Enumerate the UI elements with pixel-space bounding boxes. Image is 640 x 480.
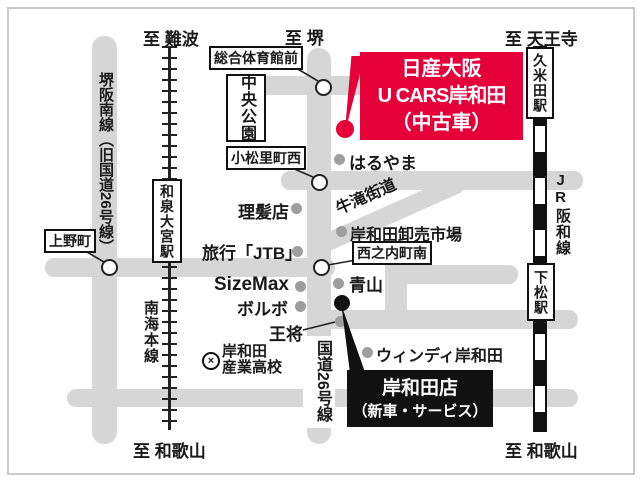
- aoyama-dot: [333, 278, 344, 289]
- station-izumiomiya: 和泉大宮駅: [152, 179, 182, 263]
- ucars-line2: U CARS岸和田: [378, 83, 506, 110]
- barber-dot: [291, 203, 302, 214]
- intersection-label-uenocho: 上野町: [44, 229, 96, 253]
- station-shimomatsu: 下松駅: [527, 263, 555, 321]
- windy-kishiwada-dot: [362, 347, 373, 358]
- kishiwada-store-callout: 岸和田店 （新車・サービス）: [347, 370, 493, 427]
- intersection-circle-uenocho: [101, 259, 118, 276]
- kishiwada-line1: 岸和田店: [382, 376, 458, 401]
- intersection-circle-komatsurichonishi: [311, 174, 328, 191]
- park-label-chuokoen: 中央公園: [226, 74, 266, 142]
- dealer-access-map: 堺阪南線（旧国道26号線） 国道26号線 牛滝街道 南海本線 JR 阪和線 至 …: [0, 0, 640, 480]
- intersection-label-komatsurichonishi: 小松里町西: [226, 146, 306, 170]
- intersection-circle-nishinouchichominami: [313, 259, 330, 276]
- intersection-label-nishinouchichominami: 西之内町南: [352, 241, 432, 265]
- volvo-dot: [295, 301, 306, 312]
- intersection-label-sogotaiikukanmae: 総合体育館前: [209, 46, 303, 70]
- wholesale-market-dot: [336, 226, 347, 237]
- ucars-line1: 日産大阪: [402, 56, 482, 83]
- sizemax-dot: [295, 281, 306, 292]
- intersection-circle-sogotaiikukanmae: [315, 79, 332, 96]
- jtb-dot: [292, 246, 303, 257]
- kishiwada-location-dot: [334, 295, 350, 311]
- haruyama-dot: [334, 154, 345, 165]
- ucars-location-dot: [336, 120, 354, 138]
- station-kumeda: 久米田駅: [526, 47, 554, 119]
- ucars-store-callout: 日産大阪 U CARS岸和田 （中古車）: [360, 52, 523, 140]
- ucars-line3: （中古車）: [392, 110, 492, 137]
- kishiwada-line2: （新車・サービス）: [352, 401, 487, 422]
